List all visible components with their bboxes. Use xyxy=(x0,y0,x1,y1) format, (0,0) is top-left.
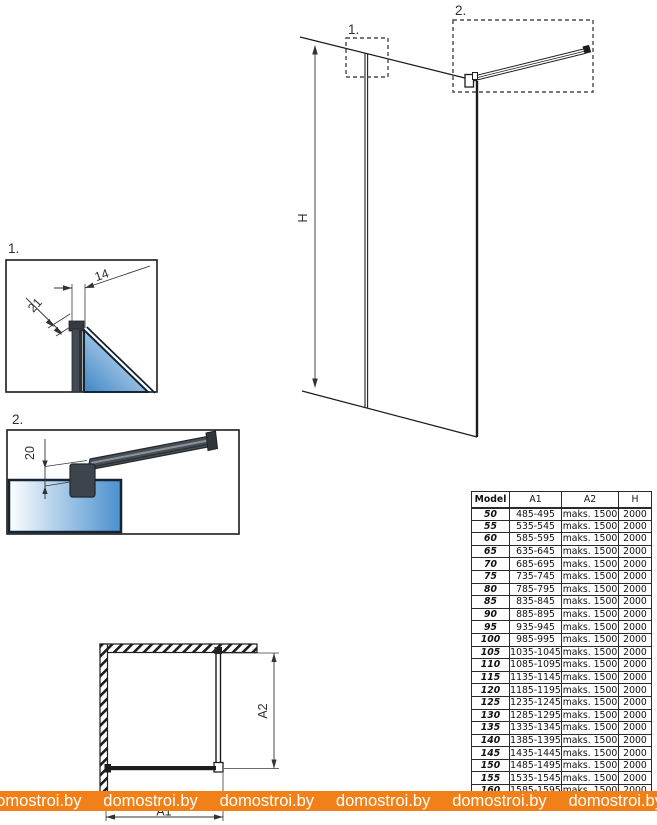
cell-model: 90 xyxy=(472,608,510,621)
size-table-row: 55 535-545 maks. 1500 2000 xyxy=(472,520,652,533)
cell-a2: maks. 1500 xyxy=(562,583,619,596)
cell-a2: maks. 1500 xyxy=(562,722,619,735)
cell-a1: 685-695 xyxy=(510,558,562,571)
cell-a1: 1435-1445 xyxy=(510,747,562,760)
walls xyxy=(100,644,257,797)
size-table-row: 120 1185-1195 maks. 1500 2000 xyxy=(472,684,652,697)
cell-h: 2000 xyxy=(619,659,652,672)
dimension-h: H xyxy=(296,45,318,388)
size-table-row: 130 1285-1295 maks. 1500 2000 xyxy=(472,709,652,722)
cell-a2: maks. 1500 xyxy=(562,747,619,760)
cell-a1: 1135-1145 xyxy=(510,671,562,684)
cell-a1: 1085-1095 xyxy=(510,659,562,672)
cell-model: 150 xyxy=(472,759,510,772)
watermark-band: domostroi.by domostroi.by domostroi.by d… xyxy=(0,791,657,811)
bar-end-cap xyxy=(206,431,218,451)
size-table-row: 105 1035-1045 maks. 1500 2000 xyxy=(472,646,652,659)
cell-h: 2000 xyxy=(619,533,652,546)
cell-a1: 885-895 xyxy=(510,608,562,621)
arrow-up-icon xyxy=(312,45,318,55)
cell-h: 2000 xyxy=(619,734,652,747)
cell-a2: maks. 1500 xyxy=(562,696,619,709)
cell-a1: 1485-1495 xyxy=(510,759,562,772)
cell-a2: maks. 1500 xyxy=(562,545,619,558)
watermark-text: domostroi.by xyxy=(336,791,430,811)
size-table-row: 110 1085-1095 maks. 1500 2000 xyxy=(472,659,652,672)
cell-h: 2000 xyxy=(619,520,652,533)
col-header-a2: A2 xyxy=(562,492,619,508)
size-table-row: 145 1435-1445 maks. 1500 2000 xyxy=(472,747,652,760)
callout-2-label: 2. xyxy=(455,3,466,18)
size-table-row: 80 785-795 maks. 1500 2000 xyxy=(472,583,652,596)
bar-wall-mount xyxy=(105,764,112,773)
cell-model: 80 xyxy=(472,583,510,596)
size-table-row: 75 735-745 maks. 1500 2000 xyxy=(472,570,652,583)
cell-model: 70 xyxy=(472,558,510,571)
cell-a1: 485-495 xyxy=(510,508,562,521)
detail-2-label: 2. xyxy=(12,412,23,427)
size-table-row: 60 585-595 maks. 1500 2000 xyxy=(472,533,652,546)
cell-h: 2000 xyxy=(619,646,652,659)
cell-a2: maks. 1500 xyxy=(562,608,619,621)
detail-1-label: 1. xyxy=(8,241,19,256)
size-table-header-row: Model A1 A2 H xyxy=(472,492,652,508)
cell-a1: 1285-1295 xyxy=(510,709,562,722)
size-table-row: 85 835-845 maks. 1500 2000 xyxy=(472,596,652,609)
cell-model: 85 xyxy=(472,596,510,609)
watermark-text: domostroi.by xyxy=(0,791,81,811)
cell-model: 75 xyxy=(472,570,510,583)
cell-a2: maks. 1500 xyxy=(562,633,619,646)
cell-a1: 585-595 xyxy=(510,533,562,546)
size-table-row: 100 985-995 maks. 1500 2000 xyxy=(472,633,652,646)
cell-h: 2000 xyxy=(619,621,652,634)
cell-a1: 1335-1345 xyxy=(510,722,562,735)
cell-a2: maks. 1500 xyxy=(562,772,619,785)
cell-a1: 985-995 xyxy=(510,633,562,646)
height-dim-label: H xyxy=(296,213,310,222)
cell-a2: maks. 1500 xyxy=(562,508,619,521)
cell-a2: maks. 1500 xyxy=(562,621,619,634)
size-table-row: 155 1535-1545 maks. 1500 2000 xyxy=(472,772,652,785)
cell-h: 2000 xyxy=(619,545,652,558)
cell-h: 2000 xyxy=(619,558,652,571)
glass-top-edge xyxy=(9,480,121,532)
cell-h: 2000 xyxy=(619,596,652,609)
dimension-a2: A2 xyxy=(222,653,279,769)
cell-model: 140 xyxy=(472,734,510,747)
detail-2-drawing: 2. 20 xyxy=(0,403,250,543)
size-table-row: 125 1235-1245 maks. 1500 2000 xyxy=(472,696,652,709)
dim-20-label: 20 xyxy=(23,446,37,460)
cell-a2: maks. 1500 xyxy=(562,596,619,609)
watermark-text: domostroi.by xyxy=(452,791,546,811)
watermark-text: domostroi.by xyxy=(568,791,657,811)
cell-h: 2000 xyxy=(619,671,652,684)
cell-h: 2000 xyxy=(619,570,652,583)
size-table-row: 150 1485-1495 maks. 1500 2000 xyxy=(472,759,652,772)
cell-a1: 535-545 xyxy=(510,520,562,533)
cell-model: 125 xyxy=(472,696,510,709)
cell-a1: 835-845 xyxy=(510,596,562,609)
cell-model: 120 xyxy=(472,684,510,697)
cell-h: 2000 xyxy=(619,508,652,521)
cell-a1: 1235-1245 xyxy=(510,696,562,709)
size-table-row: 95 935-945 maks. 1500 2000 xyxy=(472,621,652,634)
cell-a2: maks. 1500 xyxy=(562,659,619,672)
cell-a2: maks. 1500 xyxy=(562,734,619,747)
cell-a1: 935-945 xyxy=(510,621,562,634)
cell-model: 155 xyxy=(472,772,510,785)
cell-h: 2000 xyxy=(619,722,652,735)
cell-model: 145 xyxy=(472,747,510,760)
glass-panel-plan xyxy=(214,647,223,772)
cell-a2: maks. 1500 xyxy=(562,558,619,571)
size-table: Model A1 A2 H 50 485-495 maks. 1500 2000… xyxy=(471,491,652,798)
detail-1-drawing: 1. 14 21 xyxy=(0,236,170,396)
cell-h: 2000 xyxy=(619,583,652,596)
size-table-row: 140 1385-1395 maks. 1500 2000 xyxy=(472,734,652,747)
cell-model: 105 xyxy=(472,646,510,659)
cell-a2: maks. 1500 xyxy=(562,684,619,697)
catalog-page: H 1. 2. xyxy=(0,0,657,825)
cell-model: 65 xyxy=(472,545,510,558)
cell-a1: 635-645 xyxy=(510,545,562,558)
arrow-down-icon xyxy=(312,379,318,389)
col-header-model: Model xyxy=(472,492,510,508)
cell-a1: 785-795 xyxy=(510,583,562,596)
size-table-row: 50 485-495 maks. 1500 2000 xyxy=(472,508,652,521)
cell-model: 115 xyxy=(472,671,510,684)
cell-model: 110 xyxy=(472,659,510,672)
support-bar xyxy=(465,45,591,87)
cell-a1: 1535-1545 xyxy=(510,772,562,785)
cell-a2: maks. 1500 xyxy=(562,520,619,533)
size-table-row: 135 1335-1345 maks. 1500 2000 xyxy=(472,722,652,735)
cell-model: 95 xyxy=(472,621,510,634)
elevation-drawing: H 1. 2. xyxy=(278,0,610,450)
col-header-h: H xyxy=(619,492,652,508)
cell-a2: maks. 1500 xyxy=(562,671,619,684)
cell-a1: 1185-1195 xyxy=(510,684,562,697)
dim-a2-label: A2 xyxy=(256,703,270,718)
cell-h: 2000 xyxy=(619,772,652,785)
cell-h: 2000 xyxy=(619,696,652,709)
cell-a1: 735-745 xyxy=(510,570,562,583)
watermark-text: domostroi.by xyxy=(220,791,314,811)
callout-1-label: 1. xyxy=(348,22,359,37)
cell-h: 2000 xyxy=(619,709,652,722)
size-table-body: 50 485-495 maks. 1500 2000 55 535-545 ma… xyxy=(472,508,652,798)
cell-a2: maks. 1500 xyxy=(562,646,619,659)
cell-model: 130 xyxy=(472,709,510,722)
cell-a1: 1035-1045 xyxy=(510,646,562,659)
cell-a2: maks. 1500 xyxy=(562,759,619,772)
size-table-row: 90 885-895 maks. 1500 2000 xyxy=(472,608,652,621)
cell-a2: maks. 1500 xyxy=(562,570,619,583)
cell-a1: 1385-1395 xyxy=(510,734,562,747)
cell-h: 2000 xyxy=(619,633,652,646)
cell-model: 135 xyxy=(472,722,510,735)
cell-a2: maks. 1500 xyxy=(562,533,619,546)
cell-model: 100 xyxy=(472,633,510,646)
cell-h: 2000 xyxy=(619,759,652,772)
cell-h: 2000 xyxy=(619,608,652,621)
cell-model: 55 xyxy=(472,520,510,533)
cell-model: 50 xyxy=(472,508,510,521)
cell-h: 2000 xyxy=(619,747,652,760)
col-header-a1: A1 xyxy=(510,492,562,508)
wall-mount xyxy=(215,647,223,654)
cell-h: 2000 xyxy=(619,684,652,697)
support-bar-plan xyxy=(105,764,217,773)
glass-panel-outline xyxy=(300,37,477,437)
glass-clamp xyxy=(70,464,95,497)
size-table-row: 65 635-645 maks. 1500 2000 xyxy=(472,545,652,558)
cell-a2: maks. 1500 xyxy=(562,709,619,722)
size-table-row: 115 1135-1145 maks. 1500 2000 xyxy=(472,671,652,684)
cell-model: 60 xyxy=(472,533,510,546)
watermark-text: domostroi.by xyxy=(103,791,197,811)
size-table-row: 70 685-695 maks. 1500 2000 xyxy=(472,558,652,571)
